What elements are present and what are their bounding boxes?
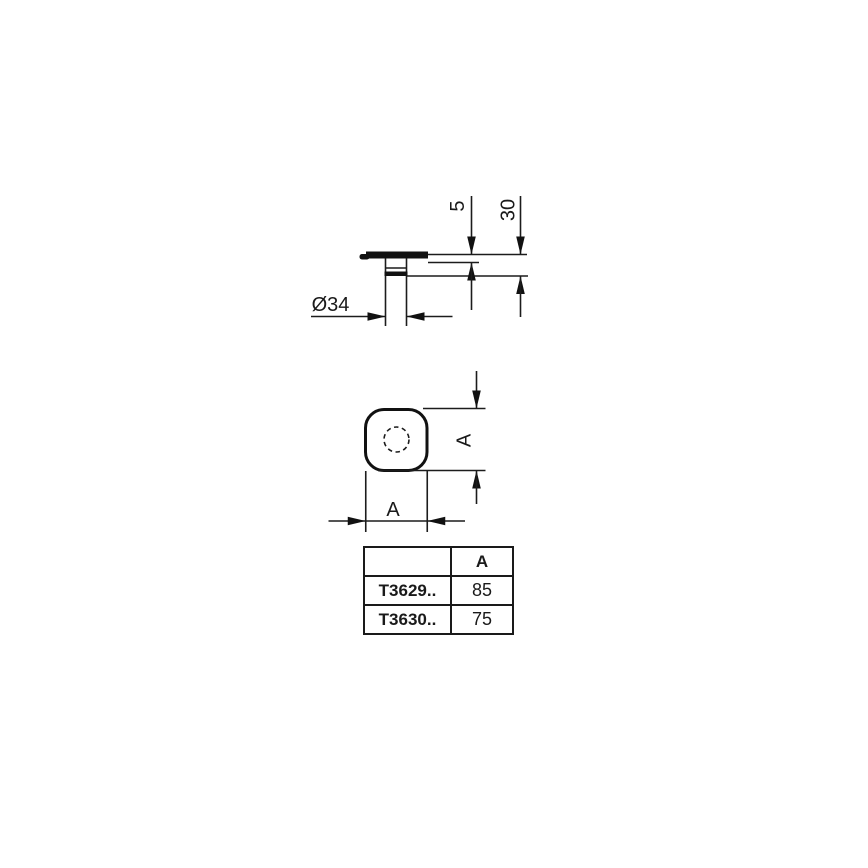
- dimension-a-horizontal-label: A: [386, 499, 400, 521]
- arrow-down-icon: [472, 391, 481, 409]
- dimension-30: 30: [498, 196, 525, 317]
- arrow-right-icon: [348, 517, 366, 526]
- blank-header-cell: [364, 547, 451, 576]
- dimension-30-label: 30: [498, 199, 520, 221]
- technical-drawing: 5 30 Ø34: [0, 0, 868, 868]
- dimension-a-vertical-label: A: [454, 433, 476, 447]
- dimension-a-horizontal: A: [329, 471, 466, 532]
- value-cell: 85: [451, 576, 513, 605]
- plan-view: A A: [329, 371, 486, 532]
- arrow-right-icon: [368, 312, 386, 321]
- spec-table: A T3629.. 85 T3630.. 75: [363, 546, 514, 635]
- table-header-row: A: [364, 547, 513, 576]
- plan-outline: [366, 410, 428, 471]
- stem-retainer-band: [385, 272, 408, 277]
- spec-sheet: 5 30 Ø34: [0, 0, 868, 868]
- table-row: T3629.. 85: [364, 576, 513, 605]
- dimension-a-vertical: A: [378, 371, 486, 504]
- arrow-left-icon: [407, 312, 425, 321]
- arrow-left-icon: [427, 517, 445, 526]
- arrow-down-icon: [516, 237, 525, 255]
- side-view: 5 30 Ø34: [311, 196, 528, 326]
- drain-hole-dashed-circle: [384, 427, 409, 452]
- dimension-5-label: 5: [447, 200, 469, 211]
- dimension-diameter-34: Ø34: [311, 294, 453, 321]
- model-cell: T3630..: [364, 605, 451, 634]
- dimension-5: 5: [447, 196, 476, 310]
- cover-plate: [366, 252, 428, 259]
- dimension-diameter-label: Ø34: [312, 294, 350, 316]
- arrow-down-icon: [467, 237, 476, 255]
- model-cell: T3629..: [364, 576, 451, 605]
- value-cell: 75: [451, 605, 513, 634]
- cover-plate-lip: [360, 254, 370, 260]
- column-header-a: A: [451, 547, 513, 576]
- table-row: T3630.. 75: [364, 605, 513, 634]
